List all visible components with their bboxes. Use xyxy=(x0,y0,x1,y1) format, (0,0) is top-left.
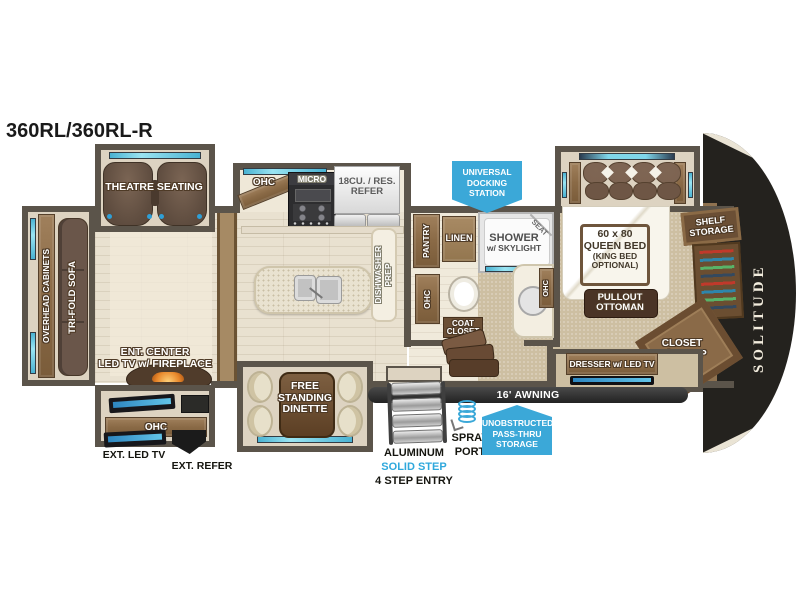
pullout-ottoman: PULLOUT OTTOMAN xyxy=(584,289,658,318)
pillow-7 xyxy=(633,182,657,200)
bed-headboard-slide xyxy=(555,146,700,212)
theatre-seating-slide: THEATRE SEATING xyxy=(95,144,215,232)
refrigerator: 18CU. / RES. REFER xyxy=(334,166,400,214)
interior-tv xyxy=(109,394,176,414)
entry-steps xyxy=(387,381,447,445)
theatre-seating-label: THEATRE SEATING xyxy=(101,182,207,194)
bath-ohc-right-label: OHC xyxy=(542,280,550,297)
overhead-cabinets-band: OVERHEAD CABINETS xyxy=(38,214,55,378)
bath-ohc-left-label: OHC xyxy=(423,290,432,309)
overhead-cabinets-label: OVERHEAD CABINETS xyxy=(42,249,51,343)
bed-window-left xyxy=(562,172,567,198)
step-tread-4 xyxy=(393,429,443,444)
wall-bath-bottom-b xyxy=(524,340,560,346)
ext-led-tv-screen xyxy=(108,434,162,443)
dresser: DRESSER w/ LED TV xyxy=(566,353,658,375)
dresser-tv xyxy=(570,376,654,385)
sink-right xyxy=(316,276,342,304)
queen-bed-label: 60 x 80 QUEEN BED (KING BED OPTIONAL) xyxy=(580,229,650,271)
pillow-8 xyxy=(657,182,681,200)
interior-tv-screen xyxy=(113,398,171,408)
dinette-label: FREE STANDING DINETTE xyxy=(257,381,353,416)
pantry-cabinet: PANTRY xyxy=(413,214,440,268)
headboard-post-left xyxy=(569,162,581,204)
kitchen-ohc-label: OHC xyxy=(244,177,284,188)
solitude-logo: SOLITUDE xyxy=(751,213,768,373)
fireplace-glow xyxy=(152,372,184,382)
queen-bed-mattress: 60 x 80 QUEEN BED (KING BED OPTIONAL) xyxy=(562,206,670,300)
dresser-tv-screen xyxy=(573,378,651,382)
theatre-cupholder-1 xyxy=(107,214,112,219)
linen-label: LINEN xyxy=(443,234,475,244)
dresser-label: DRESSER w/ LED TV xyxy=(567,360,657,369)
media-cabinet xyxy=(181,395,209,413)
dinette-slide: FREE STANDING DINETTE xyxy=(237,361,373,452)
linen-cabinet: LINEN xyxy=(442,216,476,262)
tri-fold-sofa: TRI-FOLD SOFA xyxy=(58,218,88,376)
ent-center-label: ENT. CENTER LED TV w/ FIREPLACE xyxy=(88,347,222,370)
pantry-label: PANTRY xyxy=(422,224,431,258)
bath-ohc-left: OHC xyxy=(415,274,440,324)
ext-refer-label: EXT. REFER xyxy=(156,461,248,473)
refer-label: 18CU. / RES. REFER xyxy=(335,177,399,198)
range-oven: MICRO xyxy=(288,172,336,228)
wall-bath-right xyxy=(553,206,560,347)
micro-label: MICRO xyxy=(289,175,335,184)
bedroom-stairs-step-3 xyxy=(449,359,499,377)
bed-window-top xyxy=(579,153,675,160)
kitchen-island xyxy=(254,266,372,314)
theatre-cupholder-4 xyxy=(197,214,202,219)
wall-kitchen-left xyxy=(233,163,240,213)
theatre-cupholder-3 xyxy=(159,214,164,219)
theatre-window xyxy=(109,152,201,159)
shower-label: SHOWER w/ SKYLIGHT xyxy=(482,232,546,253)
rear-sofa-slide: OVERHEAD CABINETS TRI-FOLD SOFA xyxy=(22,206,95,386)
wall-bath-left xyxy=(404,206,411,347)
oven-window xyxy=(295,189,331,202)
pillow-5 xyxy=(585,182,609,200)
bath-ohc-right: OHC xyxy=(539,268,554,308)
ext-refer-door xyxy=(172,430,206,454)
rear-window-top xyxy=(30,218,36,260)
floorplan-model-title: 360RL/360RL-R xyxy=(6,120,153,143)
theatre-cupholder-2 xyxy=(147,214,152,219)
rear-window-bottom xyxy=(30,332,36,374)
entry-landing xyxy=(386,366,442,382)
shelf-storage: SHELF STORAGE xyxy=(680,207,741,246)
sink-left xyxy=(294,275,316,301)
range-knobs xyxy=(291,222,333,225)
dishwasher-prep-counter: DISHWASHERPREP xyxy=(371,228,397,322)
step-tread-3 xyxy=(392,413,442,428)
pass-thru-storage-badge: UNOBSTRUCTED PASS-THRU STORAGE xyxy=(482,405,552,455)
toilet xyxy=(448,276,480,312)
ext-led-tv-label: EXT. LED TV xyxy=(92,450,176,462)
dishwasher-prep-label: DISHWASHERPREP xyxy=(374,246,394,304)
tri-fold-sofa-label: TRI-FOLD SOFA xyxy=(68,261,78,334)
floorplan-canvas: 360RL/360RL-R SOLITUDE OVERHEAD CABINETS xyxy=(0,0,800,600)
bed-window-right xyxy=(688,172,693,198)
pillow-6 xyxy=(609,182,633,200)
pullout-ottoman-label: PULLOUT OTTOMAN xyxy=(585,293,655,314)
step-tread-1 xyxy=(391,381,441,396)
shelf-storage-label: SHELF STORAGE xyxy=(684,214,738,239)
cooktop-burners xyxy=(293,204,331,221)
step-tread-2 xyxy=(391,397,441,412)
